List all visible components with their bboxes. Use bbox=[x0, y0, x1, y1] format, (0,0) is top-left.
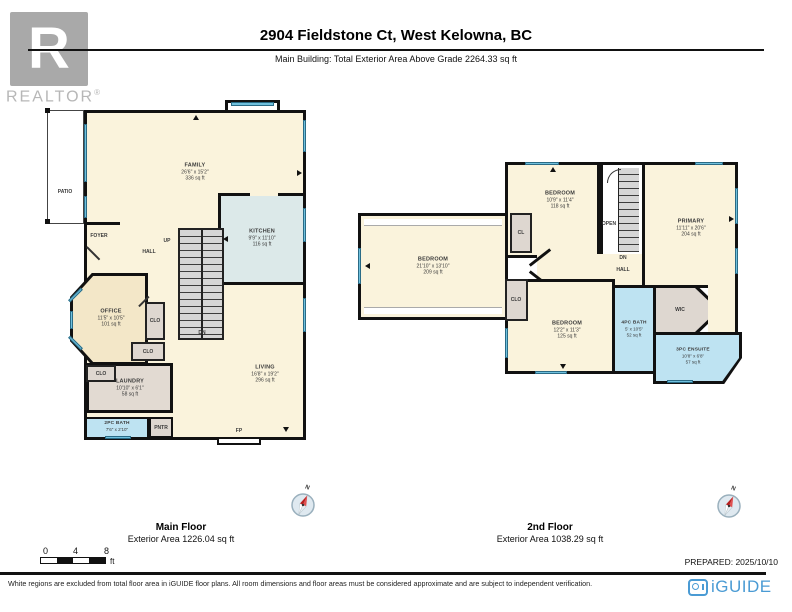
window-marker bbox=[358, 248, 361, 284]
page-subtitle: Main Building: Total Exterior Area Above… bbox=[0, 54, 792, 64]
room-label-family: FAMILY 26'6" x 15'2" 336 sq ft bbox=[181, 162, 208, 181]
room-label-living: LIVING 16'8" x 19'2" 296 sq ft bbox=[251, 364, 278, 383]
compass-north-label: N bbox=[304, 484, 310, 491]
room-label-bedroom-south: BEDROOM 12'2" x 11'3" 125 sq ft bbox=[552, 320, 582, 339]
page-title: 2904 Fieldstone Ct, West Kelowna, BC bbox=[0, 27, 792, 44]
scale-segment bbox=[57, 558, 73, 563]
main-floor-area: Exterior Area 1226.04 sq ft bbox=[128, 534, 235, 544]
label-foyer: FOYER bbox=[90, 233, 107, 239]
scale-segment bbox=[41, 558, 57, 563]
window-marker bbox=[303, 208, 306, 242]
window-marker bbox=[105, 436, 131, 439]
window-marker bbox=[303, 120, 306, 152]
bay-window-nook bbox=[225, 100, 280, 113]
primary-passage bbox=[708, 285, 738, 335]
patio-post bbox=[45, 108, 50, 113]
scale-segment bbox=[73, 558, 89, 563]
dimension-arrow-icon bbox=[297, 170, 302, 176]
label-open: OPEN bbox=[602, 221, 616, 227]
iguide-logo: iGUIDE bbox=[688, 577, 772, 597]
window-marker bbox=[84, 124, 87, 182]
dimension-arrow-icon bbox=[193, 115, 199, 120]
stairs-main bbox=[178, 228, 224, 340]
label-hall-2: HALL bbox=[616, 267, 629, 273]
stair-rail-arc bbox=[607, 169, 621, 183]
main-floor-plan: FAMILY 26'6" x 15'2" 336 sq ft KITCHEN 9… bbox=[45, 96, 315, 448]
dimension-arrow-icon bbox=[550, 167, 556, 172]
scale-tick-0: 0 bbox=[43, 546, 48, 556]
label-fireplace: FP bbox=[236, 428, 242, 434]
window-marker bbox=[735, 248, 738, 274]
label-clo-1: CLO bbox=[150, 318, 161, 324]
dimension-arrow-icon bbox=[223, 236, 228, 242]
room-label-ensuite: 3PC ENSUITE 10'8" x 6'8" 57 sq ft bbox=[676, 347, 710, 364]
window-marker bbox=[84, 196, 87, 218]
label-clo: CLO bbox=[511, 297, 522, 303]
main-floor-name: Main Floor bbox=[128, 522, 235, 533]
scale-unit: ft bbox=[110, 557, 114, 566]
scale-bar: 0 4 8 ft bbox=[40, 546, 106, 564]
label-wic: WIC bbox=[675, 307, 685, 313]
scale-segment bbox=[89, 558, 105, 563]
room-patio bbox=[47, 110, 84, 224]
label-pantry: PNTR bbox=[154, 425, 168, 431]
compass-main: N bbox=[290, 492, 316, 518]
dimension-arrow-icon bbox=[729, 216, 734, 222]
main-floor-caption: Main Floor Exterior Area 1226.04 sq ft bbox=[128, 522, 235, 544]
fireplace bbox=[217, 437, 261, 445]
room-label-4pc-bath: 4PC BATH 5' x 10'5" 52 sq ft bbox=[621, 320, 646, 337]
dimension-arrow-icon bbox=[283, 427, 289, 432]
excluded-region bbox=[364, 219, 502, 226]
compass-icon bbox=[716, 493, 742, 519]
compass-north-label: N bbox=[730, 485, 736, 492]
excluded-region bbox=[364, 307, 502, 314]
compass-icon bbox=[290, 492, 316, 518]
window-marker bbox=[70, 311, 73, 329]
window-marker bbox=[535, 371, 567, 374]
window-marker bbox=[505, 328, 508, 358]
label-dn-2: DN bbox=[619, 255, 626, 261]
window-marker bbox=[303, 298, 306, 332]
window-marker bbox=[231, 102, 274, 106]
label-dn: DN bbox=[198, 330, 205, 336]
patio-post bbox=[45, 219, 50, 224]
label-up: UP bbox=[164, 238, 171, 244]
label-hall: HALL bbox=[142, 249, 155, 255]
disclaimer-text: White regions are excluded from total fl… bbox=[8, 579, 653, 588]
second-floor-plan: BEDROOM 21'10" x 13'10" 209 sq ft BEDROO… bbox=[355, 158, 747, 390]
stairs-second bbox=[618, 168, 639, 252]
dimension-arrow-icon bbox=[560, 364, 566, 369]
prepared-date: PREPARED: 2025/10/10 bbox=[685, 557, 778, 567]
room-label-bedroom-north: BEDROOM 10'9" x 11'4" 118 sq ft bbox=[545, 190, 575, 209]
scale-tick-8: 8 bbox=[104, 546, 109, 556]
second-floor-area: Exterior Area 1038.29 sq ft bbox=[497, 534, 604, 544]
second-floor-caption: 2nd Floor Exterior Area 1038.29 sq ft bbox=[497, 522, 604, 544]
room-label-2pc-bath: 2PC BATH 7'6" x 2'10" bbox=[104, 421, 129, 433]
window-marker bbox=[735, 188, 738, 224]
scale-tick-4: 4 bbox=[73, 546, 78, 556]
window-marker bbox=[525, 162, 559, 165]
iguide-wordmark: iGUIDE bbox=[711, 577, 772, 597]
header-rule bbox=[28, 49, 764, 51]
label-clo-2: CLO bbox=[143, 349, 154, 355]
stair-divider bbox=[201, 230, 203, 338]
room-label-primary: PRIMARY 11'11" x 20'6" 204 sq ft bbox=[676, 218, 705, 237]
iguide-camera-icon bbox=[688, 579, 708, 596]
room-label-office: OFFICE 11'5" x 10'5" 101 sq ft bbox=[97, 308, 124, 327]
scale-bar-segments bbox=[40, 557, 106, 564]
room-label-bedroom-west: BEDROOM 21'10" x 13'10" 209 sq ft bbox=[417, 256, 450, 275]
stairwell bbox=[600, 162, 645, 258]
window-marker bbox=[695, 162, 723, 165]
window-marker bbox=[667, 380, 693, 383]
room-label-kitchen: KITCHEN 9'9" x 11'10" 116 sq ft bbox=[248, 228, 275, 247]
label-clo-3: CLO bbox=[96, 371, 107, 377]
dimension-arrow-icon bbox=[365, 263, 370, 269]
room-label-laundry: LAUNDRY 10'10" x 6'1" 58 sq ft bbox=[116, 378, 144, 397]
compass-second: N bbox=[716, 493, 742, 519]
doorway-opening bbox=[250, 193, 278, 196]
wall-segment bbox=[84, 222, 120, 225]
second-floor-name: 2nd Floor bbox=[497, 522, 604, 533]
label-patio: PATIO bbox=[58, 189, 73, 195]
footer-rule bbox=[0, 572, 766, 575]
label-cl: CL bbox=[518, 230, 525, 236]
